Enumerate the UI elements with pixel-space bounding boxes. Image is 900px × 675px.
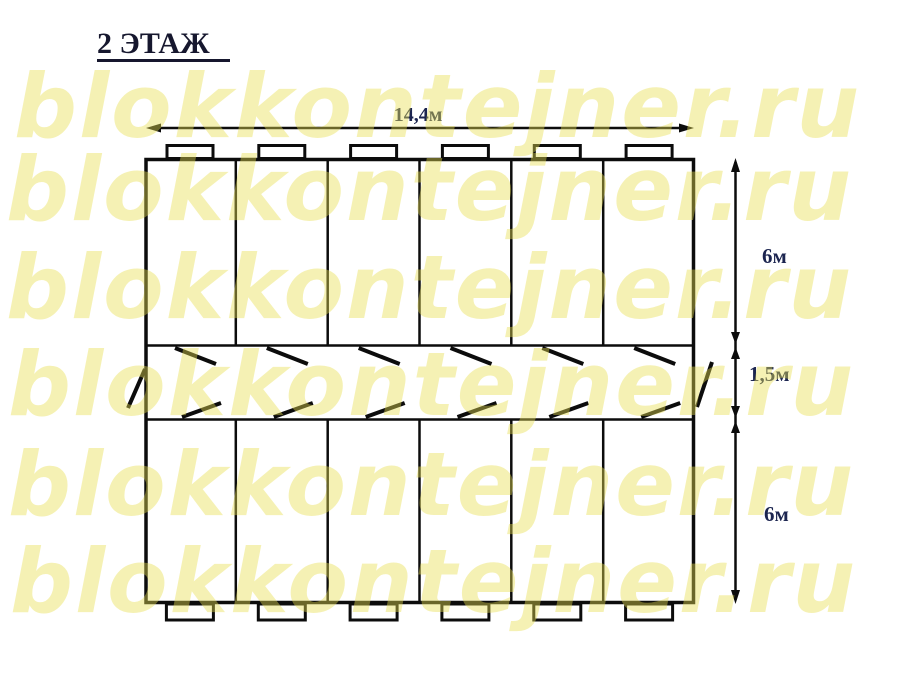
end-door-left xyxy=(128,369,145,408)
arrowhead-up-icon xyxy=(731,421,740,433)
dimension-label-bottom-section: 6м xyxy=(764,502,789,526)
window-marker xyxy=(534,146,580,159)
window-marker xyxy=(166,604,213,620)
arrowhead-up-icon xyxy=(731,347,740,359)
page-title: 2 ЭТАЖ xyxy=(97,27,210,60)
window-marker xyxy=(534,604,581,620)
end-door-right xyxy=(697,362,712,407)
arrowhead-up-icon xyxy=(731,158,740,172)
windows-top xyxy=(167,146,672,159)
width-dimension: 14,4м xyxy=(146,104,694,133)
window-marker xyxy=(442,146,488,159)
arrowhead-down-icon xyxy=(731,406,740,418)
dimension-label-corridor: 1,5м xyxy=(749,362,790,386)
window-marker xyxy=(626,604,673,620)
window-marker xyxy=(626,146,672,159)
window-marker xyxy=(442,604,489,620)
floor-plan-canvas: 2 ЭТАЖ 14,4м xyxy=(0,0,900,675)
window-marker xyxy=(258,604,305,620)
window-marker xyxy=(350,604,397,620)
arrowhead-down-icon xyxy=(731,332,740,344)
arrowhead-left-icon xyxy=(146,124,161,133)
windows-bottom xyxy=(166,604,672,620)
height-dimension: 6м 1,5м 6м xyxy=(731,158,790,604)
dimension-label-width: 14,4м xyxy=(394,104,443,126)
arrowhead-down-icon xyxy=(731,590,740,604)
arrowhead-right-icon xyxy=(679,124,694,133)
window-marker xyxy=(259,146,305,159)
dimension-label-top-section: 6м xyxy=(762,244,787,268)
window-marker xyxy=(351,146,397,159)
window-marker xyxy=(167,146,213,159)
